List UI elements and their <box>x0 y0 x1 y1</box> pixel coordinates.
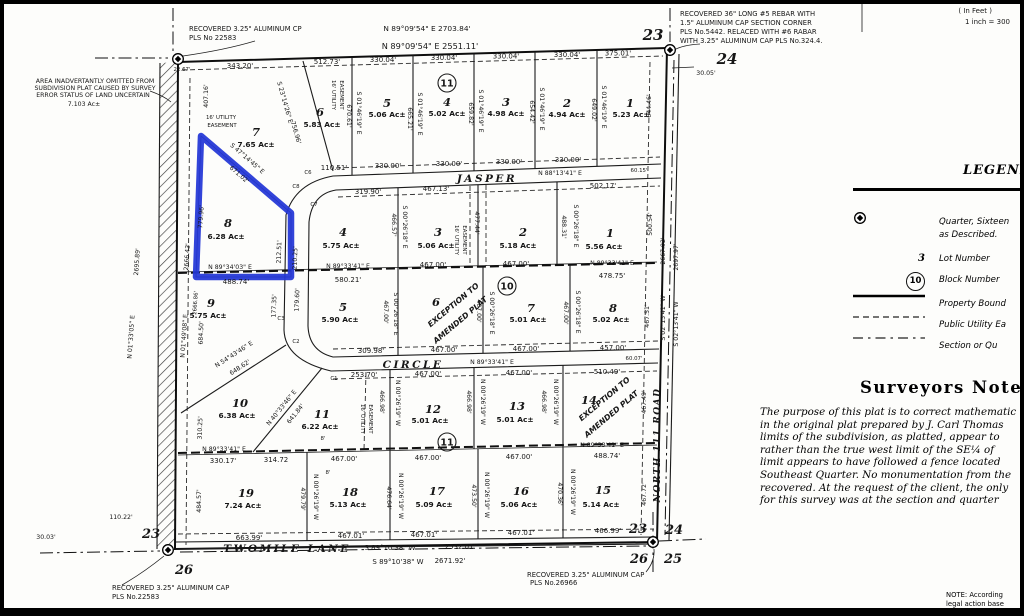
surveyors-note-line: recovered. At the request of the client,… <box>760 482 1024 495</box>
surveyors-note-line: Southeast Quarter. No monumentation from… <box>760 469 1024 482</box>
lot-area: 4.98 Ac± <box>487 109 524 118</box>
lot-number: 8 <box>224 216 232 230</box>
section-corner-marker <box>648 537 659 548</box>
dim-label: 467.49' <box>641 390 648 414</box>
dim-label: 467.01' <box>338 532 364 540</box>
block-number-symbol: 10 <box>906 272 925 291</box>
bearing-label: S 01°46'19" E <box>416 92 424 135</box>
note-line: legal action base <box>946 600 1024 609</box>
dim-label: 467.00' <box>513 345 539 353</box>
monument-note: PLS No.26966 <box>530 579 577 587</box>
surveyors-note-line: for this survey was at the section and q… <box>760 494 1024 507</box>
dim-label: 466.98' <box>465 390 472 414</box>
legend-label: Block Number <box>939 275 1000 285</box>
surveyors-note-title: Surveyors Note: <box>860 378 1024 397</box>
curve-label: C1 <box>330 376 337 382</box>
bearing-label: S 00°26'18" E <box>401 205 409 248</box>
dim-label: 488.74' <box>594 452 620 460</box>
legend-label: Section or Qu <box>939 341 997 351</box>
bearing-label: N 88°13'41" E <box>538 169 582 177</box>
dim-label: 210.25' <box>292 246 300 270</box>
dim-label: 2695.89' <box>133 248 142 276</box>
surveyors-note-line: in the original plat prepared by J. Carl… <box>760 419 1024 432</box>
dim-label: 756.96' <box>289 120 302 145</box>
dim-label: 779.96' <box>197 205 206 229</box>
dim-label: 659.82' <box>467 102 474 126</box>
dim-label: 179.60' <box>294 288 302 312</box>
bearing-label: S 00°26'18" E <box>572 204 580 247</box>
curve-label: C8 <box>292 184 300 190</box>
monument-note: WITH 3.25" ALUMINUM CAP PLS No.324.4. <box>680 37 823 45</box>
dim-label: 457.00' <box>600 344 626 352</box>
dim-label: 60.15' <box>631 168 648 174</box>
lot-area: 6.28 Ac± <box>207 232 244 241</box>
curve-label: C3 <box>277 316 284 322</box>
lot-area: 5.56 Ac± <box>585 242 622 251</box>
surveyors-note-panel: Surveyors Note: The purpose of this plat… <box>745 378 1024 507</box>
lot-number: 16 <box>513 484 529 498</box>
bearing-label: N 00°26'19" W <box>483 472 491 518</box>
lot-area: 5.01 Ac± <box>411 416 448 425</box>
legend-item-lot-number: 3Lot Number <box>853 248 1024 267</box>
lot-number: 1 <box>606 226 614 240</box>
lot-number: 1 <box>626 96 634 110</box>
lot-number: 19 <box>238 486 254 500</box>
legend-label: Property Bound <box>939 299 1006 309</box>
dim-label: 512.73' <box>314 58 340 66</box>
omitted-area-acreage: 7.103 Ac± <box>68 101 100 108</box>
lot-number: 8 <box>609 301 617 315</box>
street-label-twomile: TWOMILE LANE <box>223 543 350 555</box>
easement-label: 16' UTILITY <box>359 404 365 435</box>
legend-label: Public Utility Ea <box>939 320 1006 330</box>
bearing-label: S 01°46'19" E <box>600 85 608 128</box>
dim-label: 478.75' <box>599 272 625 280</box>
dim-label: 2671.92' <box>435 557 466 565</box>
dim-label: 22.67' <box>174 67 191 73</box>
lot-area: 5.06 Ac± <box>500 500 537 509</box>
dim-label: 375.01' <box>605 50 631 58</box>
bearing-label: N 00°26'19" W <box>552 379 560 425</box>
lot-number: 2 <box>562 96 571 110</box>
omitted-area-note: SUBDIVISION PLAT CAUSED BY SURVEY <box>34 85 155 92</box>
monument-note: RECOVERED 36" LONG #5 REBAR WITH <box>680 10 815 18</box>
lot-area: 5.75 Ac± <box>322 241 359 250</box>
lot-number: 5 <box>383 96 391 110</box>
easement-width-label: 8' <box>321 436 326 442</box>
lot-number-symbol: 3 <box>853 253 925 264</box>
bearing-label: N 01°33'05" E <box>125 315 136 359</box>
section-number: 23 <box>628 522 647 537</box>
bearing-label: S 00°26'18" E <box>392 292 400 335</box>
curve-label: C2 <box>292 339 299 345</box>
lot-area: 5.01 Ac± <box>509 315 546 324</box>
dim-label: 467.13' <box>423 185 449 193</box>
legend-rule <box>853 188 1024 191</box>
dim-label: 484.57' <box>196 489 203 513</box>
dim-label: 654.42' <box>528 100 535 124</box>
surveyors-note-line: limit appears to have followed a fence l… <box>760 456 1024 469</box>
lot-area: 5.06 Ac± <box>368 110 405 119</box>
legend-title: LEGEND <box>963 163 1024 178</box>
legend-label: as Described. <box>939 230 1024 240</box>
dim-label: 467.00' <box>382 300 389 324</box>
bearing-label: N 89°33'41" E <box>470 358 514 366</box>
bearing-label: N 89°09'54" E 2551.11' <box>382 41 479 51</box>
legend-item-block-number: 10Block Number <box>853 268 1024 291</box>
bearing-label: N 00°26'19" W <box>394 380 402 426</box>
monument-note: PLS No.22583 <box>112 593 159 601</box>
plat-sheet: 11 10 11 RECOVERED 3.25" ALUMINUM CP PLS… <box>0 0 1024 616</box>
dim-label: 502.17' <box>590 182 616 190</box>
legend-panel: LEGEND Quarter, Sixteen as Described. 3L… <box>853 163 1024 191</box>
dim-label: 330.00' <box>555 156 581 164</box>
lot-number: 2 <box>518 225 527 239</box>
lot-number: 18 <box>342 485 358 499</box>
lot-area: 5.14 Ac± <box>582 500 619 509</box>
lot-number: 3 <box>434 225 442 239</box>
lot-number: 3 <box>502 95 510 109</box>
bearing-label: N 00°26'19" W <box>397 473 405 519</box>
dim-label: 467.00' <box>503 260 529 268</box>
dim-label: 2667.92' <box>660 237 667 265</box>
easement-label: EASEMENT <box>367 404 373 434</box>
bearing-label: N 89°33'41" E <box>580 441 624 449</box>
section-number: 23 <box>141 527 160 542</box>
lot-area: 5.90 Ac± <box>321 315 358 324</box>
dim-label: 649.02' <box>590 98 597 122</box>
section-number: 26 <box>174 563 193 578</box>
block-number: 11 <box>440 438 453 449</box>
bearing-label: N 89°33'41" E <box>590 259 634 267</box>
bearing-label: S 02°13'41" W <box>672 301 680 346</box>
dim-label: 330.04' <box>370 56 396 64</box>
surveyors-note-line: The purpose of this plat is to correct m… <box>760 406 1024 419</box>
lot-area: 6.22 Ac± <box>301 422 338 431</box>
dim-label: 580.21' <box>335 276 361 284</box>
dim-label: 467.51' <box>644 304 651 328</box>
section-number: 23 <box>642 26 664 44</box>
bearing-label: N 00°26'19" W <box>312 474 320 520</box>
easement-label: 16' UTILITY <box>330 80 336 111</box>
dim-label: 310.25' <box>197 416 205 440</box>
bearing-label: S 00°26'18" E <box>574 290 582 333</box>
bearing-label: S 01°46'19" E <box>538 87 546 130</box>
monument-note: RECOVERED 3.25" ALUMINUM CAP <box>112 584 229 592</box>
monument-note: PLS No 22583 <box>189 34 236 42</box>
lot-number: 9 <box>207 296 215 310</box>
easement-label: EASEMENT <box>461 225 467 255</box>
dim-label: 467.00' <box>562 301 569 325</box>
dim-label: 309.98' <box>358 347 384 355</box>
lot-area: 5.02 Ac± <box>428 109 465 118</box>
lot-area: 5.75 Ac± <box>189 311 226 320</box>
surveyors-note-line: limits of the subdivision, as platted, a… <box>760 431 1024 444</box>
lot-number: 13 <box>509 399 525 413</box>
dim-label: 2697.97' <box>673 243 680 271</box>
monument-note: 1.5" ALUMINUM CAP SECTION CORNER <box>680 19 812 27</box>
block-number: 10 <box>500 282 514 293</box>
note-line: NOTE: According <box>946 591 1024 600</box>
dim-label: 407.16' <box>203 84 210 108</box>
lot-number: 7 <box>527 301 535 315</box>
bearing-label: N 89°09'54" E 2703.84' <box>383 24 470 33</box>
dim-label: 467.01' <box>508 529 534 537</box>
dim-label: 663.99' <box>236 534 262 542</box>
bearing-label: S 23°14'26" E <box>275 81 295 125</box>
dim-label: 467.00' <box>506 369 532 377</box>
bearing-label: S 89°10'38" W <box>372 558 423 566</box>
section-number: 25 <box>663 552 682 567</box>
omitted-area-note: AREA INADVERTANTLY OMITTED FROM <box>36 78 154 85</box>
easement-width-label: 8' <box>326 470 331 476</box>
dim-label: 473.50' <box>470 484 477 508</box>
dim-label: 212.51' <box>276 240 284 264</box>
dim-label: 467.00' <box>415 370 441 378</box>
lot-number: 5 <box>339 300 347 314</box>
legend-item-section-line: Section or Qu <box>853 335 1024 354</box>
bearing-label: N 00°26'19" W <box>569 469 577 515</box>
street-label-jasper: JASPER <box>455 173 517 185</box>
lot-number: 6 <box>432 295 440 309</box>
monument-note: PLS No.5442. RELACED WITH #6 RABAR <box>680 28 817 36</box>
omitted-area-note: ERROR STATUS OF LAND UNCERTAIN <box>36 92 150 99</box>
bottom-right-note: NOTE: According legal action base <box>946 591 1024 609</box>
lot-area: 5.13 Ac± <box>329 500 366 509</box>
bearing-label: S 01°46'19" E <box>477 89 485 132</box>
dim-label: 466.98' <box>540 390 547 414</box>
lot-area: 5.18 Ac± <box>499 241 536 250</box>
dim-label: 30.05' <box>696 70 716 77</box>
lot-area: 7.65 Ac± <box>237 140 274 149</box>
scale-units: ( In Feet ) <box>958 7 992 15</box>
dim-label: 470.36' <box>556 482 563 506</box>
bearing-label: S 89°10'38" W <box>364 544 415 552</box>
dim-label: 314.72 <box>264 456 289 464</box>
bearing-label: N 89°33'41" E <box>326 262 370 270</box>
lot-number: 6 <box>316 105 324 119</box>
lot-area: 5.09 Ac± <box>415 500 452 509</box>
lot-number: 4 <box>339 225 347 239</box>
dim-label: 253.70' <box>351 371 377 379</box>
dim-label: 466.99' <box>595 527 621 535</box>
dim-label: 467.01' <box>411 531 437 539</box>
dim-label: 684.50' <box>198 321 206 345</box>
section-number: 24 <box>716 50 738 68</box>
lot-number: 7 <box>252 125 260 139</box>
dim-label: 2666.43' <box>183 243 192 271</box>
dim-label: 466.57' <box>390 213 397 237</box>
lot-number: 11 <box>314 407 330 421</box>
dim-label: 319.90' <box>355 188 381 196</box>
section-corner-marker <box>173 54 184 65</box>
bearing-label: S 02°13'41" W <box>659 295 667 340</box>
dim-label: 30.03' <box>36 534 56 541</box>
dim-label: 60.07' <box>626 356 643 362</box>
dim-label: 488.74' <box>223 278 249 286</box>
dim-label: 488.31' <box>560 215 567 239</box>
dim-label: 110.51' <box>321 164 347 172</box>
section-number: 24 <box>664 523 683 538</box>
lot-area: 7.24 Ac± <box>224 501 261 510</box>
dim-label: 330.00' <box>496 158 522 166</box>
dim-label: 330.17' <box>210 457 236 465</box>
dim-label: 343.20' <box>227 62 253 70</box>
lot-number: 15 <box>595 483 611 497</box>
bearing-label: S 00°26'18" E <box>488 291 496 334</box>
lot-number: 12 <box>425 402 441 416</box>
lot-area: 5.23 Ac± <box>612 110 649 119</box>
bearing-label: N 00°26'19" W <box>479 379 487 425</box>
legend-label: Lot Number <box>939 254 990 264</box>
easement-label: EASEMENT <box>207 123 237 129</box>
legend-item-property-boundary: Property Bound <box>853 293 1024 312</box>
dim-label: 467.00' <box>420 261 446 269</box>
dim-label: 467.00' <box>431 346 457 354</box>
lot-area: 5.01 Ac± <box>496 415 533 424</box>
scale-ratio: 1 inch = 300 <box>965 18 1010 26</box>
street-label-north111: NORTH 111 ROAD <box>653 388 663 504</box>
bearing-label: S 01°46'19" E <box>355 91 363 134</box>
dim-label: 330.04' <box>554 51 580 59</box>
curve-label: C6 <box>304 170 312 176</box>
dim-label: 330.04' <box>431 54 457 62</box>
lot-area: 5.83 Ac± <box>303 120 340 129</box>
bearing-label: N 89°33'41" E <box>202 445 246 453</box>
dim-label: 2532.01' <box>445 543 476 551</box>
section-corner-marker <box>665 45 676 56</box>
dim-label: 479.79' <box>299 487 306 511</box>
dim-label: 467.00' <box>331 455 357 463</box>
dim-label: 466.98' <box>378 390 385 414</box>
bearing-label: N 89°34'03" E <box>208 263 252 271</box>
lot-area: 4.94 Ac± <box>548 110 585 119</box>
dim-label: 330.00' <box>375 162 401 170</box>
monument-note: RECOVERED 3.25" ALUMINUM CP <box>189 25 302 33</box>
easement-label: EASEMENT <box>338 80 344 110</box>
dim-label: 330.04' <box>493 53 519 61</box>
legend-item-utility-easement: Public Utility Ea <box>853 314 1024 333</box>
section-number: 26 <box>629 552 648 567</box>
easement-label: 16' UTILITY <box>206 115 237 121</box>
legend-label: Quarter, Sixteen <box>939 217 1009 227</box>
legend-item-quarter-corner: Quarter, Sixteen as Described. <box>853 211 1024 240</box>
monument-note: RECOVERED 3.25" ALUMINUM CAP <box>527 571 644 579</box>
lot-number: 10 <box>232 396 248 410</box>
dim-label: 110.22' <box>109 514 133 521</box>
lot-area: 5.06 Ac± <box>417 241 454 250</box>
dim-label: 665.21' <box>406 107 413 131</box>
lot-area: 5.02 Ac± <box>592 315 629 324</box>
dim-label: 510.49' <box>594 368 620 376</box>
surveyors-note-line: rather than the true west limit of the S… <box>760 444 1024 457</box>
dim-label: 670.61' <box>345 104 352 128</box>
dim-label: 500.54' <box>647 212 654 236</box>
dim-label: 467.72' <box>641 482 648 506</box>
dim-label: 177.35' <box>271 294 279 318</box>
dim-label: 476.64' <box>385 486 392 510</box>
dim-label: 467.00' <box>415 454 441 462</box>
lot-area: 6.38 Ac± <box>218 411 255 420</box>
dim-label: 467.00' <box>506 453 532 461</box>
lot-number: 17 <box>429 484 445 498</box>
section-corner-marker <box>163 545 174 556</box>
dim-label: 477.44' <box>473 211 480 235</box>
lot-number: 4 <box>443 95 451 109</box>
dim-label: 330.00' <box>436 160 462 168</box>
block-number: 11 <box>440 79 453 90</box>
curve-label: C7 <box>310 202 317 208</box>
